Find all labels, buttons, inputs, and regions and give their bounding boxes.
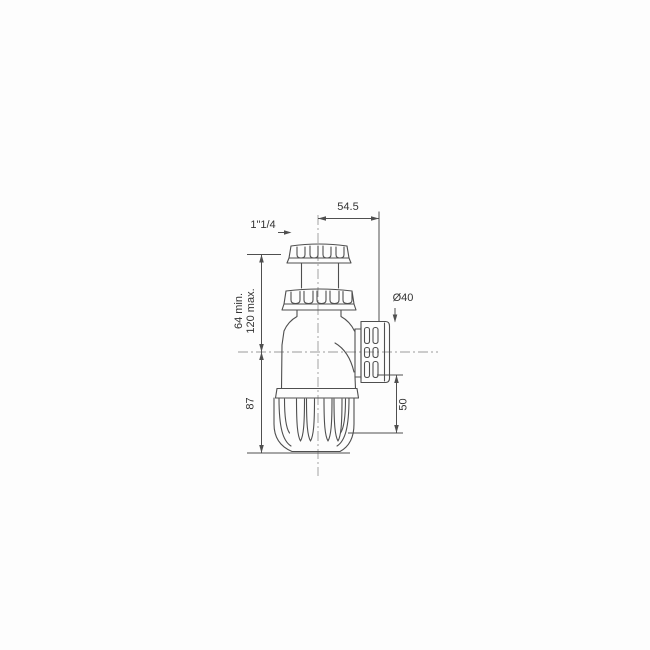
dimension-lines (247, 212, 403, 454)
dim-label-inlet-min: 64 min. (233, 285, 245, 337)
dim-label-body-height: 87 (245, 394, 258, 414)
compression-nut (282, 289, 356, 310)
top-inlet-nut (287, 244, 351, 263)
cup-ribs (285, 399, 346, 441)
inlet-tube (302, 263, 339, 288)
dim-label-outlet-diameter: Ø40 (383, 292, 423, 304)
bottle-trap-drawing (0, 0, 650, 650)
body-band (276, 389, 359, 399)
trap-body (282, 310, 356, 389)
dim-label-inlet-max: 120 max. (245, 285, 257, 337)
outlet-flange (355, 327, 361, 379)
trap-outline (274, 244, 390, 452)
dim-label-top-width: 54.5 (328, 201, 368, 213)
dim-label-inlet-height: 64 min. 120 max. (233, 285, 259, 337)
dim-label-outlet-drop: 50 (398, 395, 411, 415)
drawing-page: 54.5 1"1/4 64 min. 120 max. 87 Ø40 50 (0, 0, 650, 650)
dim-label-inlet-thread: 1"1/4 (243, 219, 283, 231)
